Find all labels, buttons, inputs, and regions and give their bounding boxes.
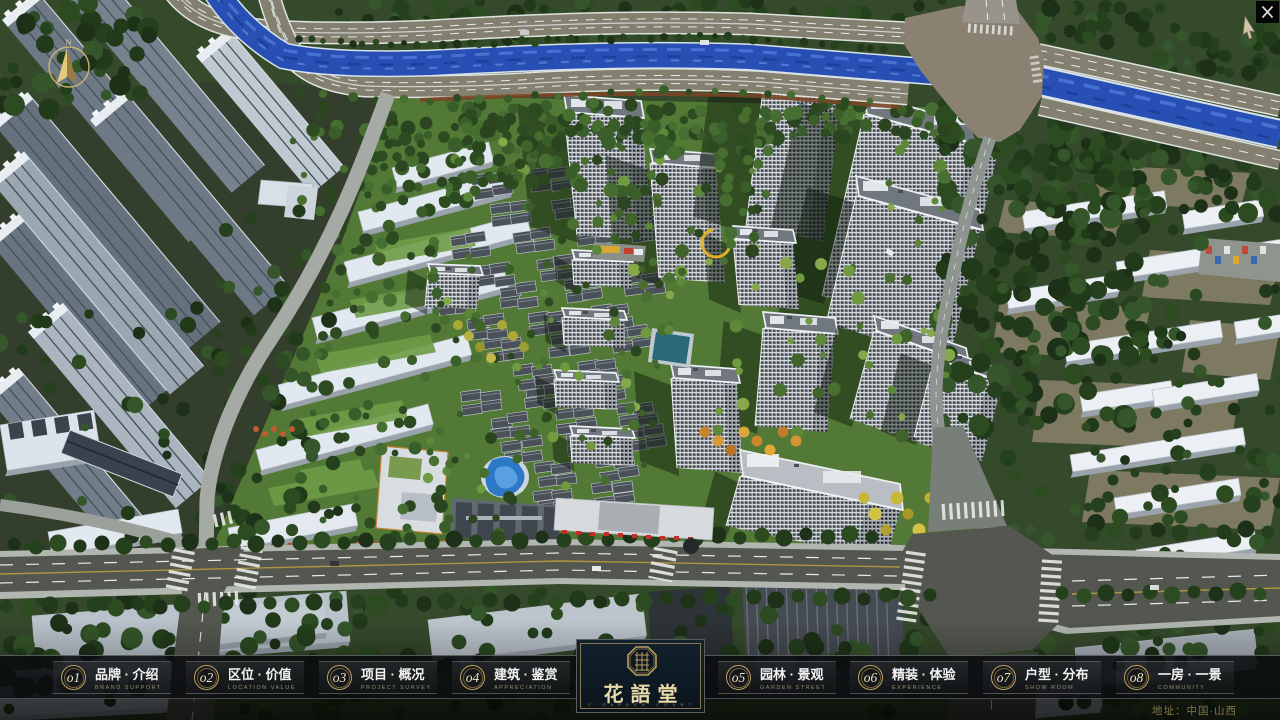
- svg-text:N: N: [66, 38, 72, 47]
